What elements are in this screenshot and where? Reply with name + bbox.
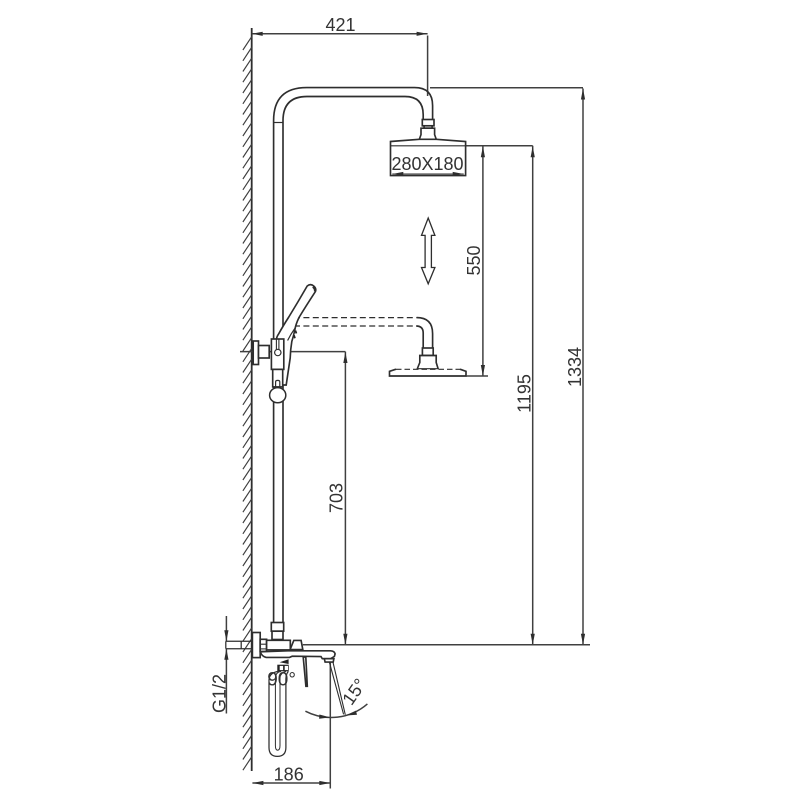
svg-text:280X180: 280X180 <box>391 154 463 174</box>
svg-text:703: 703 <box>327 483 347 513</box>
svg-text:1195: 1195 <box>515 374 535 413</box>
svg-text:G1/2: G1/2 <box>210 674 230 713</box>
svg-text:90°: 90° <box>267 669 296 690</box>
svg-text:1334: 1334 <box>565 347 585 387</box>
svg-text:186: 186 <box>274 764 304 784</box>
svg-text:421: 421 <box>325 15 355 35</box>
svg-text:550: 550 <box>464 245 484 275</box>
